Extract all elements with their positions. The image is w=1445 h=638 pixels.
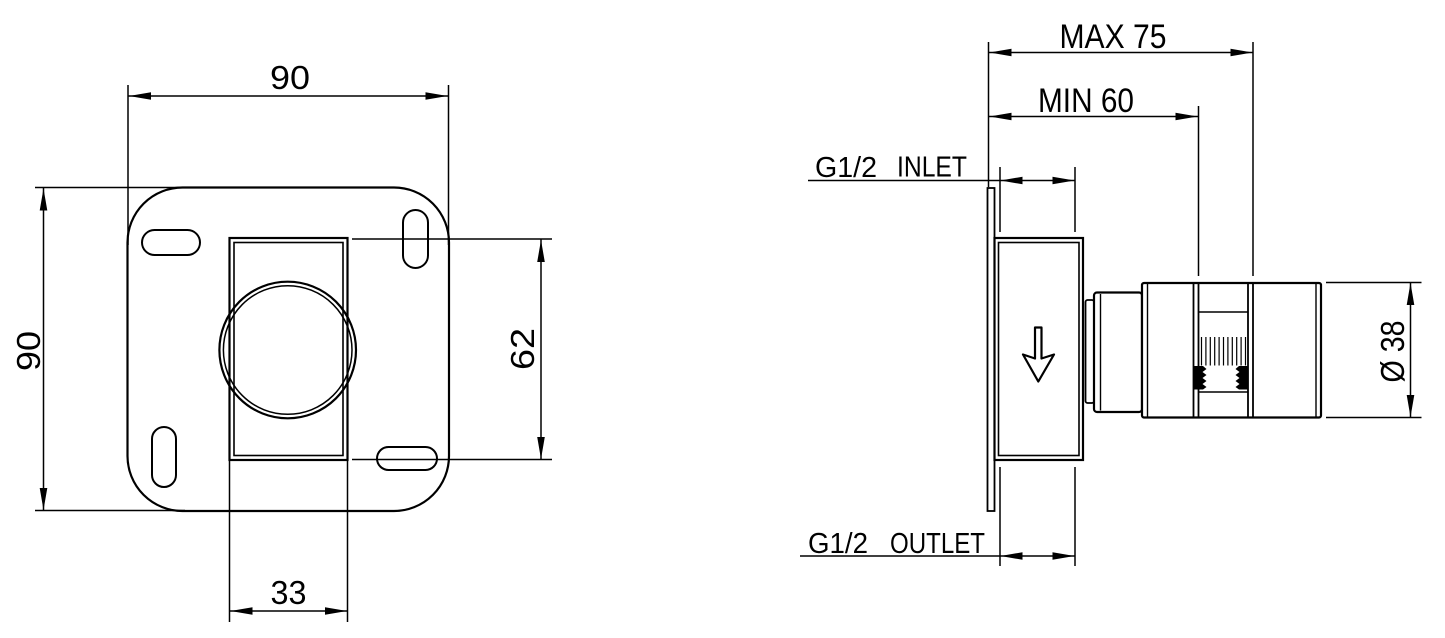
front-view: 90 90 62 33 xyxy=(10,59,552,622)
dimension-label: 90 xyxy=(270,59,310,96)
valve-cutout-outer xyxy=(230,238,348,460)
dimension-cutout-height: 62 xyxy=(352,239,552,460)
dimension-label: Ø 38 xyxy=(1374,321,1411,383)
mounting-slot-bottom-left xyxy=(152,427,176,487)
dimension-cutout-width: 33 xyxy=(230,461,348,622)
inlet-thread-label: G1/2 xyxy=(815,152,877,184)
handle-assembly-outline xyxy=(1142,283,1321,418)
outlet-callout: G1/2 OUTLET xyxy=(800,467,1075,566)
handle-knob-inner xyxy=(223,286,352,415)
dimension-plate-height: 90 xyxy=(10,188,185,511)
outlet-thread-label: G1/2 xyxy=(808,528,868,560)
cartridge-collar xyxy=(1086,300,1095,403)
side-view: MAX 75 MIN 60 G1/2 INLET G1/2 OUTLET xyxy=(800,18,1422,566)
mounting-slot-bottom-right xyxy=(377,447,437,470)
dimension-label: 90 xyxy=(10,331,47,371)
dimension-label: 33 xyxy=(271,574,307,611)
dimension-handle-diameter: Ø 38 xyxy=(1326,283,1422,418)
dimension-label: 62 xyxy=(504,328,541,370)
inlet-label: INLET xyxy=(897,152,967,184)
handle-knob-outer xyxy=(219,282,356,419)
handle-assembly xyxy=(1142,283,1321,418)
technical-drawing: 90 90 62 33 xyxy=(0,0,1445,638)
dimension-label: MAX 75 xyxy=(1060,18,1167,56)
dimension-plate-width: 90 xyxy=(128,59,449,245)
valve-cutout-inner xyxy=(234,243,343,456)
mounting-slot-top-left xyxy=(142,230,200,255)
outlet-label: OUTLET xyxy=(890,528,985,560)
dimension-label: MIN 60 xyxy=(1038,82,1134,120)
inlet-callout: G1/2 INLET xyxy=(808,152,1075,233)
